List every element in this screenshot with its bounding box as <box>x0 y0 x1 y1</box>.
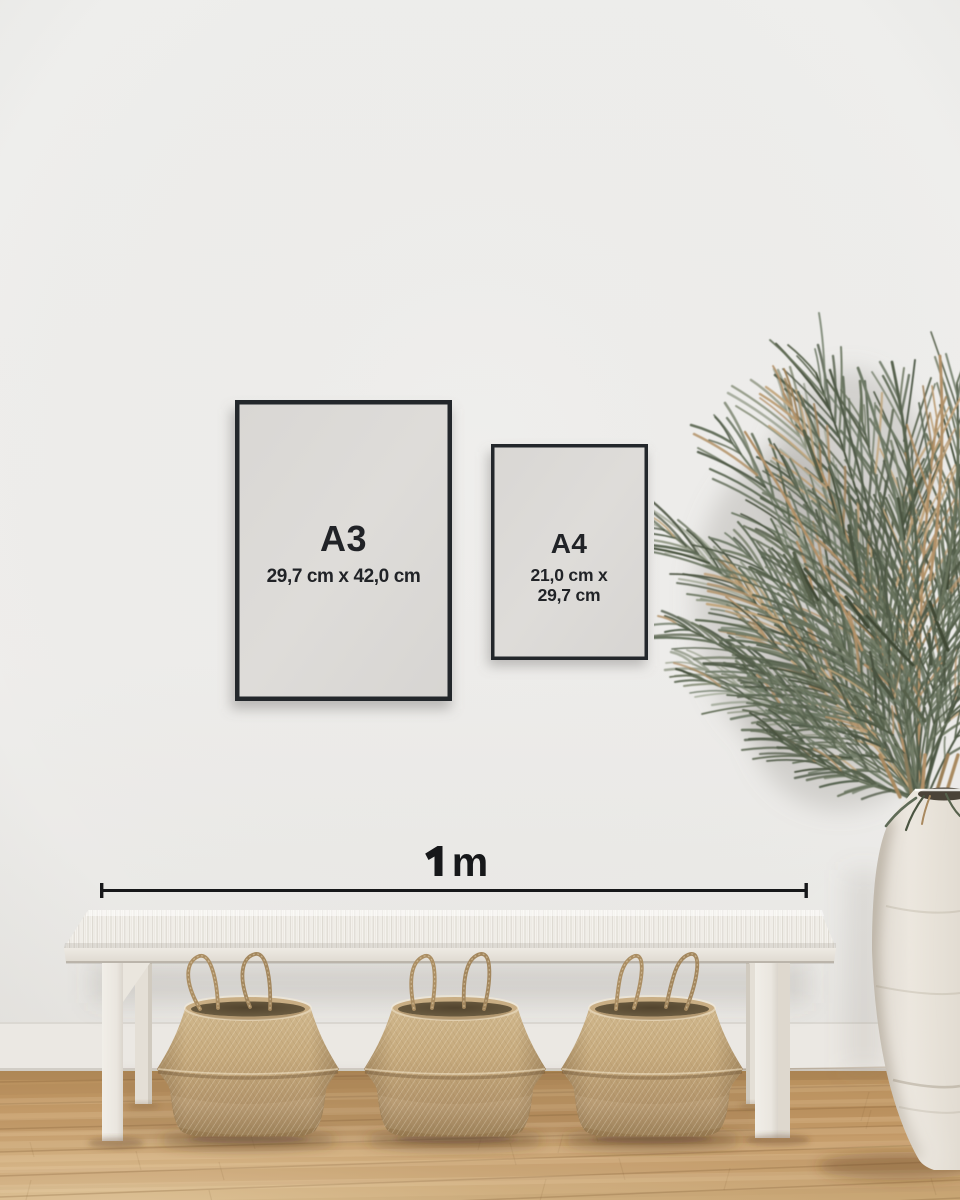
svg-text:A4: A4 <box>551 528 588 559</box>
svg-text:29,7 cm x 42,0 cm: 29,7 cm x 42,0 cm <box>267 566 421 587</box>
svg-text:21,0 cm x: 21,0 cm x <box>530 565 607 585</box>
svg-text:29,7 cm: 29,7 cm <box>538 585 601 605</box>
svg-text:m: m <box>452 839 488 885</box>
svg-text:A3: A3 <box>320 518 367 559</box>
